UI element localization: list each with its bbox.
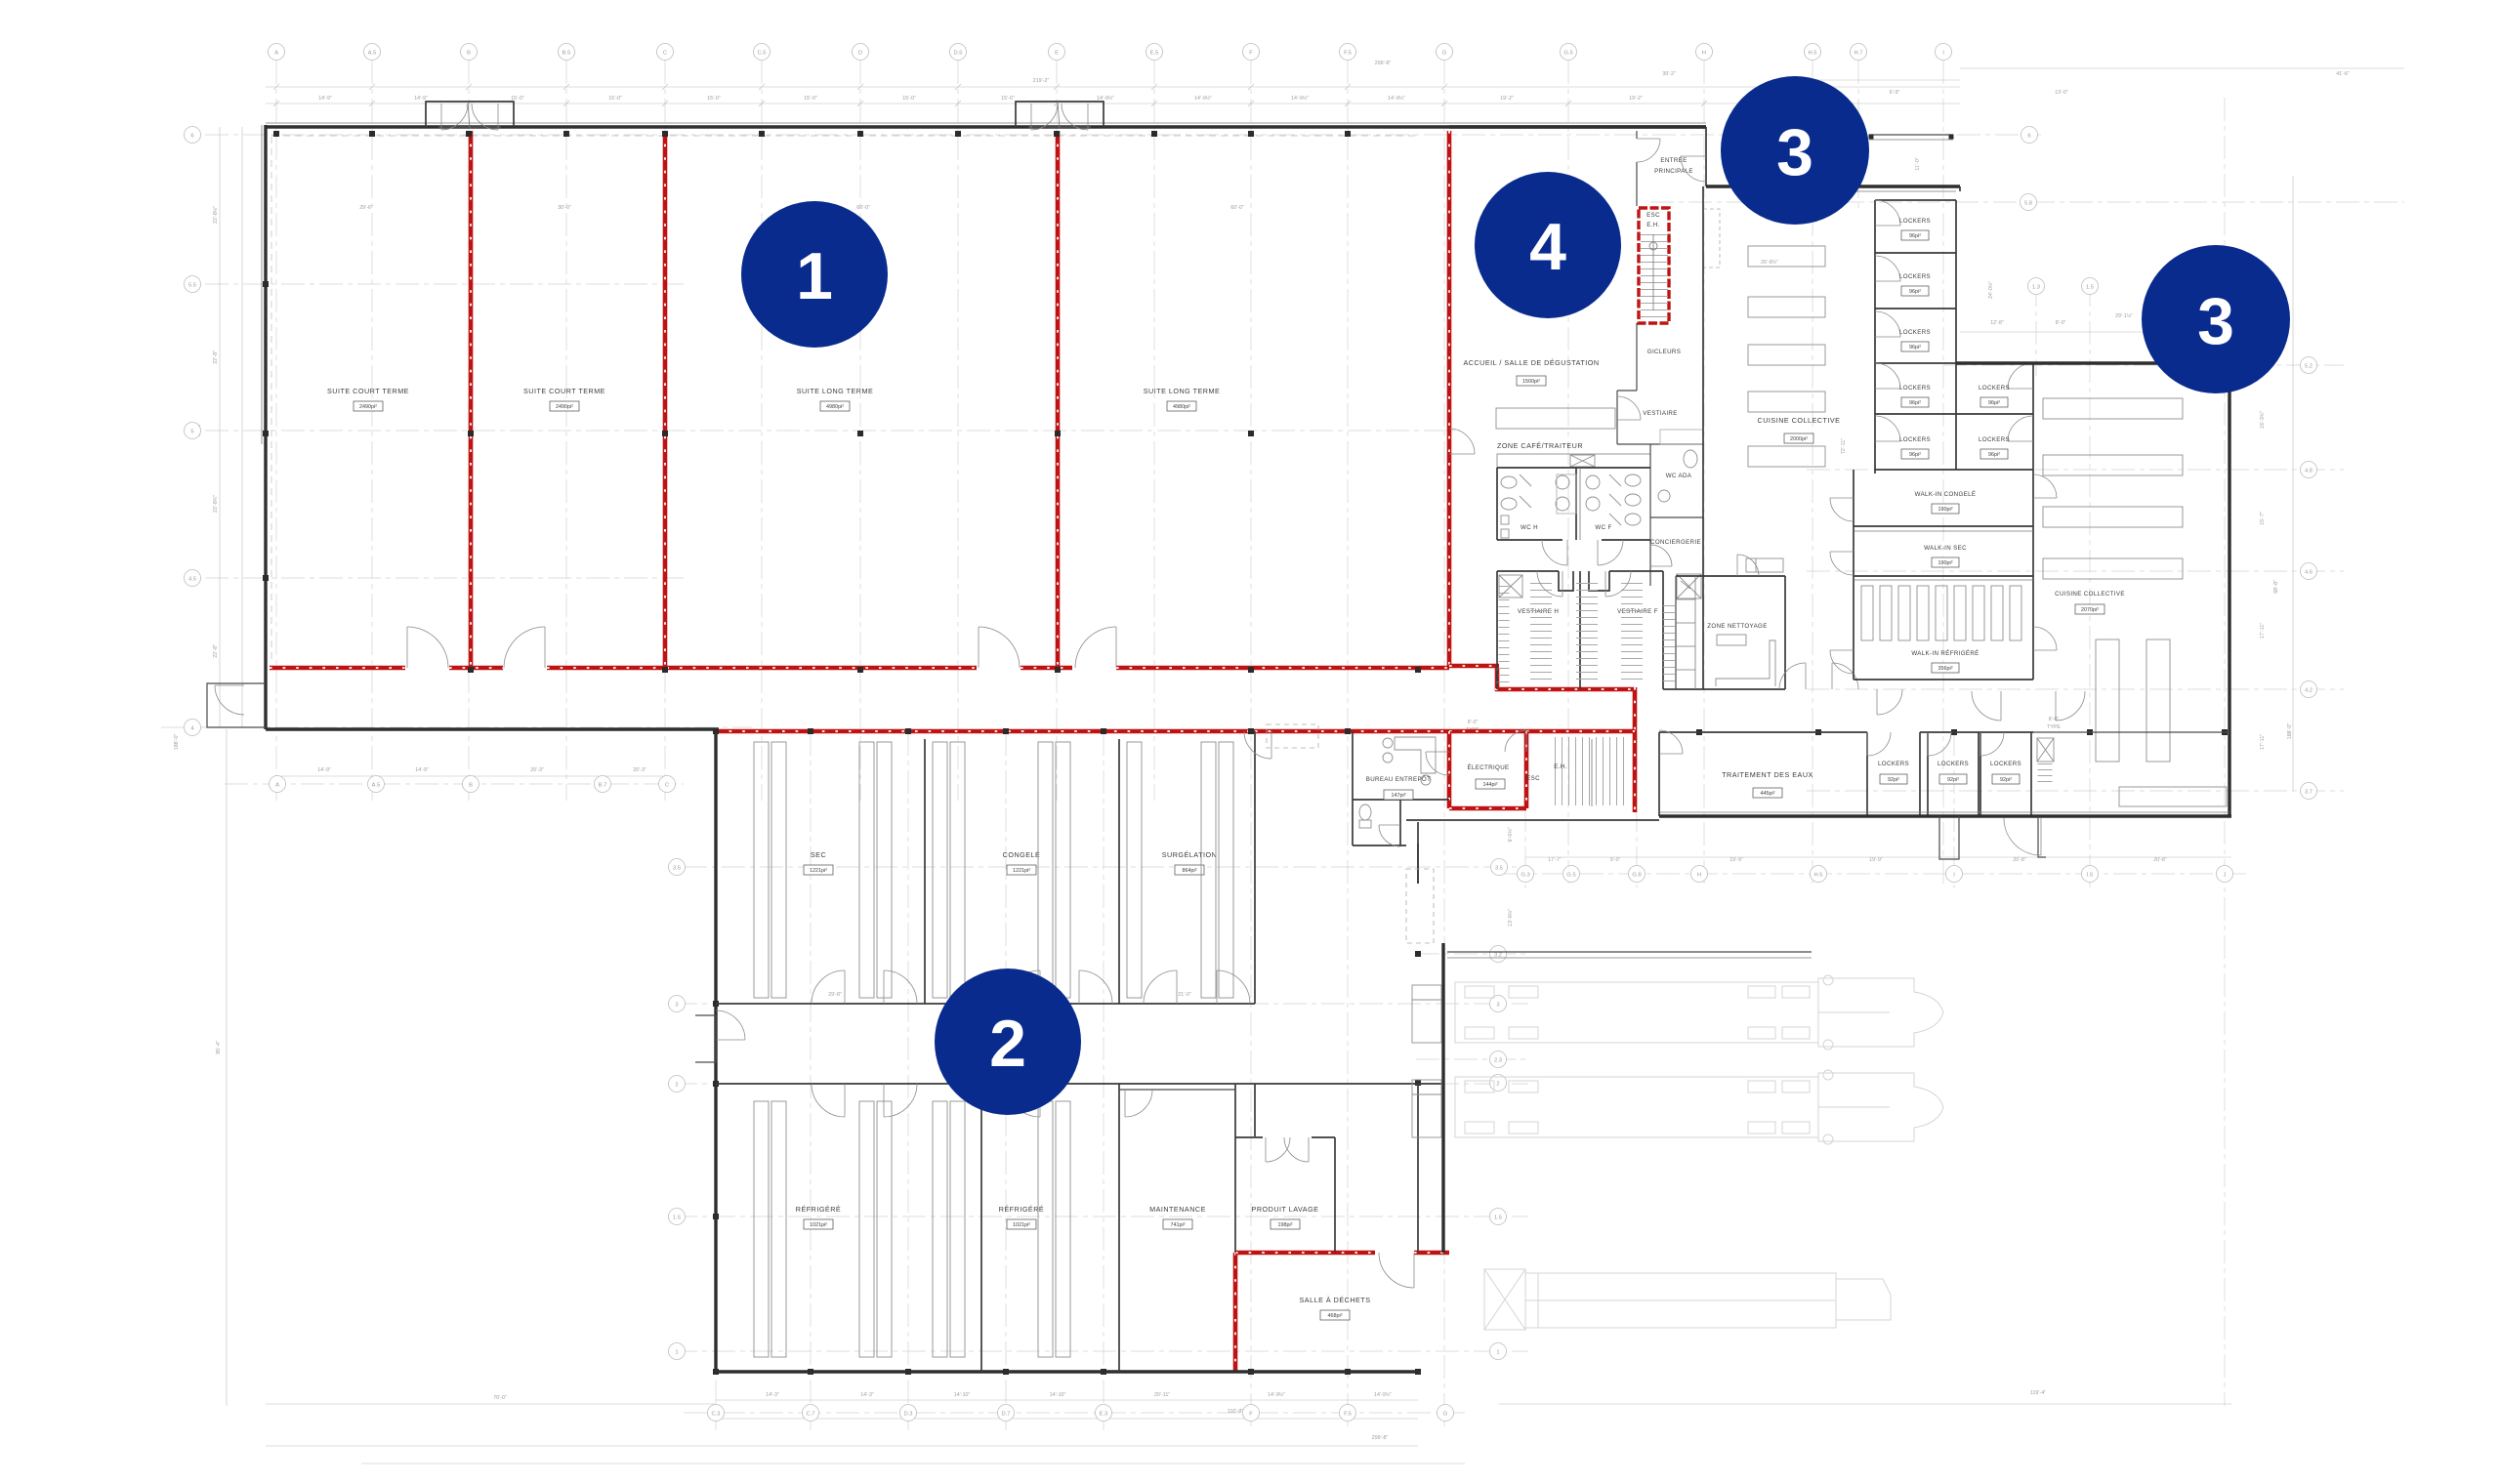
svg-text:1.5: 1.5 xyxy=(2086,284,2094,290)
svg-text:VESTIAIRE: VESTIAIRE xyxy=(1643,410,1677,417)
svg-text:B: B xyxy=(467,50,471,56)
svg-text:SUITE COURT TERME: SUITE COURT TERME xyxy=(523,387,605,395)
svg-text:198pi²: 198pi² xyxy=(1278,1222,1293,1228)
svg-text:17’-11”: 17’-11” xyxy=(2260,734,2266,750)
svg-text:H: H xyxy=(1697,872,1701,878)
svg-text:RÉFRIGÉRÉ: RÉFRIGÉRÉ xyxy=(999,1205,1044,1214)
svg-text:14’-9”: 14’-9” xyxy=(414,96,428,102)
svg-text:14’-3”: 14’-3” xyxy=(766,1392,779,1398)
svg-text:E: E xyxy=(1055,50,1059,56)
svg-text:14’-9”: 14’-9” xyxy=(415,767,429,773)
svg-text:3.2: 3.2 xyxy=(1494,952,1502,958)
svg-text:WC ADA: WC ADA xyxy=(1666,473,1692,479)
svg-text:SURGÉLATION: SURGÉLATION xyxy=(1162,850,1218,859)
svg-text:5.2: 5.2 xyxy=(2305,363,2312,369)
svg-text:C: C xyxy=(663,50,667,56)
svg-text:14’-9”: 14’-9” xyxy=(318,96,332,102)
svg-text:13’-0”: 13’-0” xyxy=(2055,90,2068,96)
svg-text:2: 2 xyxy=(675,1082,678,1088)
svg-text:2: 2 xyxy=(1496,1081,1499,1087)
svg-text:8’-0”: 8’-0” xyxy=(2056,320,2066,326)
svg-text:445pi²: 445pi² xyxy=(1761,791,1775,797)
svg-text:ESC: ESC xyxy=(1526,775,1540,782)
svg-text:8’-0”: 8’-0” xyxy=(1468,720,1479,725)
svg-text:SALLE À DÉCHETS: SALLE À DÉCHETS xyxy=(1299,1296,1370,1304)
svg-text:15’-0”: 15’-0” xyxy=(707,96,721,102)
svg-text:9’-0½”: 9’-0½” xyxy=(1507,827,1514,842)
svg-text:19’-2”: 19’-2” xyxy=(1629,96,1643,102)
svg-text:RÉFRIGÉRÉ: RÉFRIGÉRÉ xyxy=(796,1205,841,1214)
svg-text:6: 6 xyxy=(190,133,193,139)
svg-text:LOCKERS: LOCKERS xyxy=(1899,436,1931,443)
svg-text:9’-0”: 9’-0” xyxy=(1610,857,1621,863)
svg-text:ENTRÉE: ENTRÉE xyxy=(1660,157,1687,164)
svg-text:G.3: G.3 xyxy=(1521,872,1529,878)
svg-text:15’-0”: 15’-0” xyxy=(511,96,524,102)
svg-text:70’-0”: 70’-0” xyxy=(493,1395,507,1401)
svg-text:188’-0”: 188’-0” xyxy=(174,734,180,751)
svg-text:14’-3”: 14’-3” xyxy=(860,1392,874,1398)
svg-text:TRAITEMENT DES EAUX: TRAITEMENT DES EAUX xyxy=(1722,770,1813,779)
svg-text:F.5: F.5 xyxy=(1344,50,1352,56)
svg-text:5: 5 xyxy=(190,429,193,434)
svg-text:20’-8”: 20’-8” xyxy=(2013,857,2026,863)
svg-text:H.5: H.5 xyxy=(1808,50,1816,56)
svg-text:12’-8”: 12’-8” xyxy=(1990,320,2004,326)
svg-text:96pi²: 96pi² xyxy=(1909,400,1921,406)
svg-text:LOCKERS: LOCKERS xyxy=(1937,761,1969,767)
svg-text:92pi²: 92pi² xyxy=(1947,777,1959,783)
svg-text:D.7: D.7 xyxy=(1001,1411,1010,1417)
svg-text:15’-7”: 15’-7” xyxy=(2260,512,2266,525)
svg-text:15’-0”: 15’-0” xyxy=(1001,96,1015,102)
svg-text:19’-2”: 19’-2” xyxy=(1500,96,1514,102)
svg-text:96pi²: 96pi² xyxy=(1988,400,2000,406)
svg-text:68’-8”: 68’-8” xyxy=(2273,580,2279,594)
svg-text:2490pi²: 2490pi² xyxy=(556,404,573,410)
svg-text:ACCUEIL / SALLE DE DÉGUSTATION: ACCUEIL / SALLE DE DÉGUSTATION xyxy=(1463,358,1599,367)
svg-text:LOCKERS: LOCKERS xyxy=(1899,273,1931,280)
svg-text:2.3: 2.3 xyxy=(1494,1057,1502,1063)
svg-text:8’-0”: 8’-0” xyxy=(2049,717,2060,722)
svg-text:20’-3”: 20’-3” xyxy=(530,767,544,773)
svg-text:22’-8”: 22’-8” xyxy=(213,644,219,658)
svg-text:188’-0”: 188’-0” xyxy=(2287,723,2293,740)
svg-text:92pi²: 92pi² xyxy=(2000,777,2012,783)
svg-text:29’-6”: 29’-6” xyxy=(359,205,373,211)
svg-text:21’-0”: 21’-0” xyxy=(1178,992,1191,998)
svg-text:92pi²: 92pi² xyxy=(1888,777,1899,783)
svg-text:WC H: WC H xyxy=(1521,524,1538,531)
svg-text:14’-9½”: 14’-9½” xyxy=(1268,1391,1285,1398)
svg-text:C.5: C.5 xyxy=(757,50,766,56)
svg-text:G.8: G.8 xyxy=(1632,872,1641,878)
svg-text:5.8: 5.8 xyxy=(2024,200,2032,206)
svg-text:13’-6½”: 13’-6½” xyxy=(1507,909,1514,927)
svg-text:14’-10”: 14’-10” xyxy=(1050,1392,1066,1398)
svg-text:2: 2 xyxy=(989,1007,1026,1081)
svg-text:29’-1½”: 29’-1½” xyxy=(2115,312,2133,319)
svg-text:96pi²: 96pi² xyxy=(1909,345,1921,350)
svg-text:4.2: 4.2 xyxy=(2305,687,2312,693)
svg-text:20’-3”: 20’-3” xyxy=(633,767,646,773)
svg-text:96pi²: 96pi² xyxy=(1988,452,2000,458)
svg-text:WC F: WC F xyxy=(1595,524,1611,531)
svg-text:14’-9½”: 14’-9½” xyxy=(1194,95,1212,102)
svg-text:5.5: 5.5 xyxy=(188,282,196,288)
svg-text:3: 3 xyxy=(675,1002,678,1008)
svg-text:E.5: E.5 xyxy=(1150,50,1159,56)
svg-text:SEC: SEC xyxy=(811,850,826,859)
svg-text:3: 3 xyxy=(1776,115,1813,189)
svg-text:LOCKERS: LOCKERS xyxy=(1899,329,1931,336)
svg-text:PRODUIT LAVAGE: PRODUIT LAVAGE xyxy=(1252,1205,1319,1214)
svg-text:G.5: G.5 xyxy=(1566,872,1575,878)
svg-text:39’-2”: 39’-2” xyxy=(1662,71,1676,77)
svg-text:4: 4 xyxy=(1529,210,1566,284)
svg-text:95’-4”: 95’-4” xyxy=(216,1041,222,1054)
svg-text:4980pi²: 4980pi² xyxy=(1173,404,1190,410)
svg-text:14’-9”: 14’-9” xyxy=(317,767,331,773)
svg-text:CUISINE COLLECTIVE: CUISINE COLLECTIVE xyxy=(2055,591,2125,598)
svg-text:14’-9½”: 14’-9½” xyxy=(1291,95,1309,102)
svg-text:H.7: H.7 xyxy=(1854,50,1862,56)
svg-text:4.5: 4.5 xyxy=(188,576,196,582)
svg-text:LOCKERS: LOCKERS xyxy=(1979,436,2010,443)
svg-text:C.3: C.3 xyxy=(711,1411,720,1417)
svg-text:VESTIAIRE F: VESTIAIRE F xyxy=(1617,608,1658,615)
svg-text:19’-9”: 19’-9” xyxy=(1729,857,1743,863)
svg-text:C: C xyxy=(665,782,669,788)
svg-text:D: D xyxy=(858,50,862,56)
svg-text:219’-2”: 219’-2” xyxy=(1033,78,1050,84)
svg-text:D.5: D.5 xyxy=(953,50,962,56)
svg-text:468pi²: 468pi² xyxy=(1328,1313,1343,1319)
svg-text:96pi²: 96pi² xyxy=(1909,452,1921,458)
svg-text:CONCIERGERIE: CONCIERGERIE xyxy=(1650,539,1701,546)
svg-text:3: 3 xyxy=(2197,284,2234,358)
svg-text:MAINTENANCE: MAINTENANCE xyxy=(1149,1205,1206,1214)
svg-text:WALK-IN CONGELÉ: WALK-IN CONGELÉ xyxy=(1915,491,1977,498)
svg-text:G: G xyxy=(1443,1411,1448,1417)
svg-text:GICLEURS: GICLEURS xyxy=(1647,349,1681,355)
svg-text:1021pi²: 1021pi² xyxy=(810,1222,827,1228)
svg-text:1: 1 xyxy=(796,239,833,313)
svg-text:110’-8”: 110’-8” xyxy=(1228,1409,1243,1415)
svg-text:1021pi²: 1021pi² xyxy=(1013,1222,1030,1228)
svg-text:144pi²: 144pi² xyxy=(1483,782,1498,788)
svg-text:SUITE LONG TERME: SUITE LONG TERME xyxy=(797,387,874,395)
svg-text:24’-0½”: 24’-0½” xyxy=(1987,281,1994,299)
svg-text:864pi²: 864pi² xyxy=(1183,868,1197,874)
svg-text:1500pi²: 1500pi² xyxy=(1522,379,1540,385)
svg-text:190pi²: 190pi² xyxy=(1938,560,1953,566)
svg-text:B.7: B.7 xyxy=(599,782,607,788)
svg-text:F.5: F.5 xyxy=(1344,1411,1352,1417)
svg-text:3.5: 3.5 xyxy=(1495,865,1503,871)
svg-text:1.5: 1.5 xyxy=(673,1215,681,1220)
svg-text:H: H xyxy=(1702,50,1706,56)
svg-text:1.5: 1.5 xyxy=(1494,1215,1502,1220)
svg-text:LOCKERS: LOCKERS xyxy=(1878,761,1909,767)
svg-text:BUREAU ENTREPÔT: BUREAU ENTREPÔT xyxy=(1366,776,1431,783)
svg-text:14’-10”: 14’-10” xyxy=(954,1392,971,1398)
svg-text:15’-0”: 15’-0” xyxy=(902,96,916,102)
svg-text:60’-0”: 60’-0” xyxy=(856,205,870,211)
svg-text:D.3: D.3 xyxy=(903,1411,912,1417)
svg-text:I.5: I.5 xyxy=(2087,872,2093,878)
svg-text:SUITE LONG TERME: SUITE LONG TERME xyxy=(1144,387,1221,395)
svg-text:14’-9½”: 14’-9½” xyxy=(1097,95,1114,102)
svg-text:72’-11”: 72’-11” xyxy=(1841,438,1847,454)
svg-text:WALK-IN RÉFRIGÉRÉ: WALK-IN RÉFRIGÉRÉ xyxy=(1911,650,1979,657)
svg-text:29’-8”: 29’-8” xyxy=(828,992,842,998)
svg-text:4.8: 4.8 xyxy=(2305,468,2312,474)
svg-text:299’-8”: 299’-8” xyxy=(1372,1435,1389,1441)
svg-text:1: 1 xyxy=(675,1349,678,1355)
svg-text:B: B xyxy=(469,782,473,788)
svg-text:26’-8½”: 26’-8½” xyxy=(1761,259,1778,266)
svg-text:CUISINE COLLECTIVE: CUISINE COLLECTIVE xyxy=(1758,416,1841,425)
svg-text:LOCKERS: LOCKERS xyxy=(1899,385,1931,392)
svg-text:VESTIAIRE H: VESTIAIRE H xyxy=(1518,608,1559,615)
svg-text:2000pi²: 2000pi² xyxy=(1790,436,1808,442)
svg-text:11’-0”: 11’-0” xyxy=(1915,157,1921,170)
svg-text:CONGELÉ: CONGELÉ xyxy=(1003,850,1041,859)
svg-text:15’-0”: 15’-0” xyxy=(608,96,622,102)
svg-text:LOCKERS: LOCKERS xyxy=(1979,385,2010,392)
svg-text:WALK-IN SEC: WALK-IN SEC xyxy=(1924,545,1967,552)
svg-text:147pi²: 147pi² xyxy=(1392,793,1406,799)
svg-text:A: A xyxy=(274,50,278,56)
svg-text:60’-0”: 60’-0” xyxy=(1230,205,1244,211)
svg-text:17’-11”: 17’-11” xyxy=(2260,623,2266,639)
svg-text:14’-9½”: 14’-9½” xyxy=(1374,1391,1392,1398)
svg-text:14’-9½”: 14’-9½” xyxy=(1388,95,1405,102)
svg-text:G: G xyxy=(1442,50,1447,56)
svg-text:ZONE CAFÉ/TRAITEUR: ZONE CAFÉ/TRAITEUR xyxy=(1497,441,1583,450)
svg-text:LOCKERS: LOCKERS xyxy=(1899,218,1931,225)
svg-text:ÉLECTRIQUE: ÉLECTRIQUE xyxy=(1467,764,1509,771)
svg-text:119’-4”: 119’-4” xyxy=(2030,1390,2046,1396)
svg-text:190pi²: 190pi² xyxy=(1938,507,1953,513)
svg-text:ZONE NETTOYAGE: ZONE NETTOYAGE xyxy=(1707,623,1767,630)
svg-text:TYPE: TYPE xyxy=(2047,724,2061,730)
svg-text:C.7: C.7 xyxy=(806,1411,814,1417)
svg-text:15’-0”: 15’-0” xyxy=(804,96,817,102)
svg-text:3: 3 xyxy=(1496,1002,1499,1008)
svg-text:SUITE COURT TERME: SUITE COURT TERME xyxy=(327,387,409,395)
svg-text:20’-8”: 20’-8” xyxy=(2153,857,2167,863)
svg-text:E.3: E.3 xyxy=(1100,1411,1108,1417)
svg-text:ESC: ESC xyxy=(1646,212,1660,219)
svg-text:1221pi²: 1221pi² xyxy=(1013,868,1030,874)
svg-text:741pi²: 741pi² xyxy=(1171,1222,1186,1228)
svg-text:299’-8”: 299’-8” xyxy=(1375,61,1392,66)
svg-text:A.5: A.5 xyxy=(368,50,377,56)
svg-text:20’-11”: 20’-11” xyxy=(1154,1392,1170,1398)
svg-text:A.5: A.5 xyxy=(372,782,381,788)
svg-text:16’-3¾”: 16’-3¾” xyxy=(2260,411,2266,429)
svg-text:22’-8”: 22’-8” xyxy=(213,350,219,364)
svg-text:F: F xyxy=(1249,1411,1253,1417)
svg-text:1221pi²: 1221pi² xyxy=(810,868,827,874)
svg-text:H.5: H.5 xyxy=(1813,872,1822,878)
svg-text:19’-9”: 19’-9” xyxy=(1869,857,1883,863)
svg-text:22’-8¾”: 22’-8¾” xyxy=(213,495,219,513)
svg-text:4.6: 4.6 xyxy=(2305,569,2312,575)
svg-text:96pi²: 96pi² xyxy=(1909,289,1921,295)
svg-text:F: F xyxy=(1249,50,1253,56)
svg-text:96pi²: 96pi² xyxy=(1909,233,1921,239)
svg-text:2070pi²: 2070pi² xyxy=(2081,607,2099,613)
svg-text:LOCKERS: LOCKERS xyxy=(1990,761,2021,767)
svg-text:E.H.: E.H. xyxy=(1646,222,1659,228)
svg-text:1: 1 xyxy=(1496,1349,1499,1355)
svg-text:6: 6 xyxy=(2027,133,2030,139)
svg-text:6’-9”: 6’-9” xyxy=(1890,90,1900,96)
svg-text:B.5: B.5 xyxy=(562,50,571,56)
svg-text:2490pi²: 2490pi² xyxy=(359,404,377,410)
svg-text:22’-8½”: 22’-8½” xyxy=(212,206,219,224)
svg-text:A: A xyxy=(275,782,279,788)
svg-text:E.H.: E.H. xyxy=(1554,763,1566,770)
svg-text:G.5: G.5 xyxy=(1563,50,1572,56)
svg-text:17’-7”: 17’-7” xyxy=(1548,857,1562,863)
svg-text:4980pi²: 4980pi² xyxy=(826,404,844,410)
svg-text:356pi²: 356pi² xyxy=(1938,666,1953,672)
svg-text:1.3: 1.3 xyxy=(2032,284,2040,290)
svg-text:30’-0”: 30’-0” xyxy=(558,205,571,211)
svg-text:3.7: 3.7 xyxy=(2305,789,2312,795)
svg-text:3.5: 3.5 xyxy=(673,865,681,871)
svg-text:41’-6”: 41’-6” xyxy=(2336,71,2350,77)
svg-text:J: J xyxy=(2224,872,2227,878)
